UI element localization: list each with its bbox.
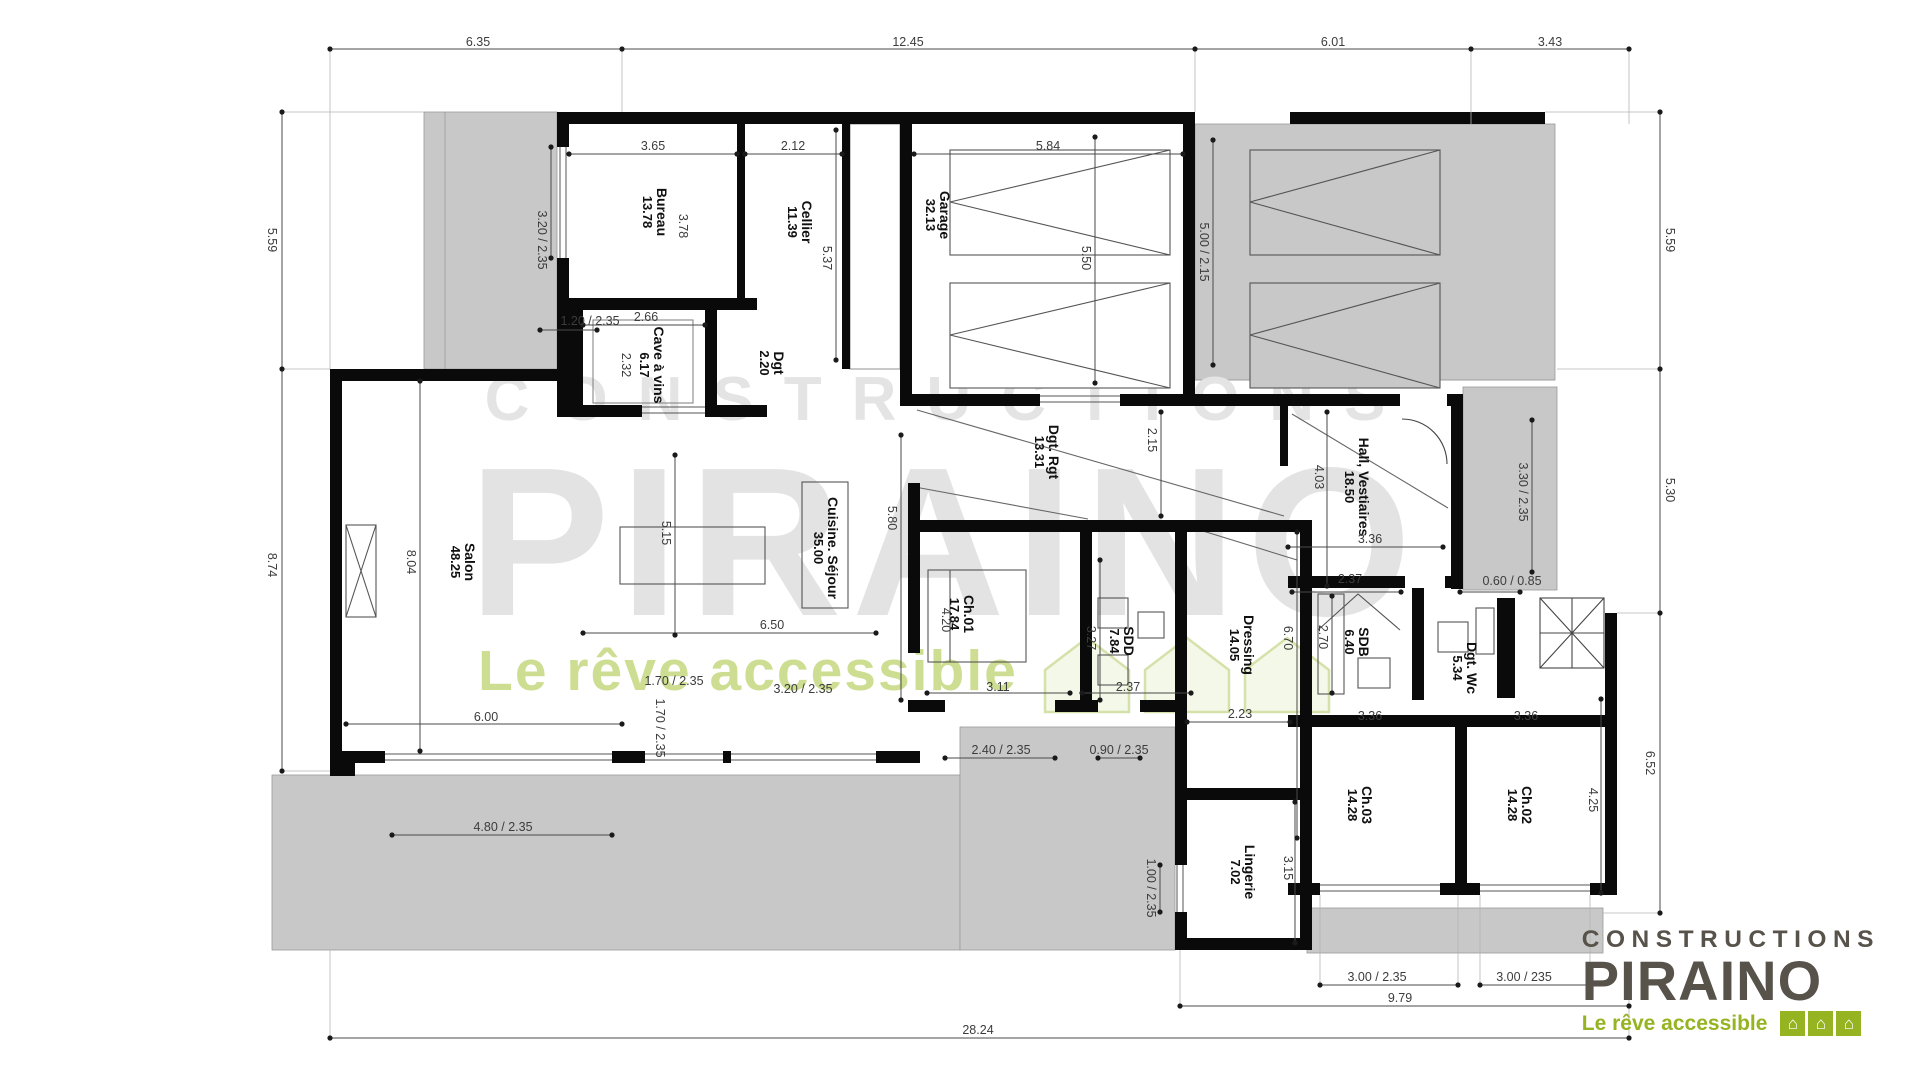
house-icon: ⌂	[1836, 1011, 1861, 1036]
logo-tagline: Le rêve accessible	[1582, 1012, 1768, 1036]
floor-plan-page: CONSTRUCTIONS PIRAINO Le rêve accessible	[0, 0, 1920, 1080]
logo-piraino: PIRAINO	[1582, 954, 1880, 1007]
watermark: CONSTRUCTIONS PIRAINO Le rêve accessible	[468, 365, 1421, 712]
company-logo: CONSTRUCTIONS PIRAINO Le rêve accessible…	[1582, 926, 1880, 1036]
house-icon: ⌂	[1780, 1011, 1805, 1036]
house-icon: ⌂	[1808, 1011, 1833, 1036]
watermark-line2: PIRAINO	[468, 423, 1421, 660]
floorplan-drawing: CONSTRUCTIONS PIRAINO Le rêve accessible	[0, 0, 1920, 1080]
